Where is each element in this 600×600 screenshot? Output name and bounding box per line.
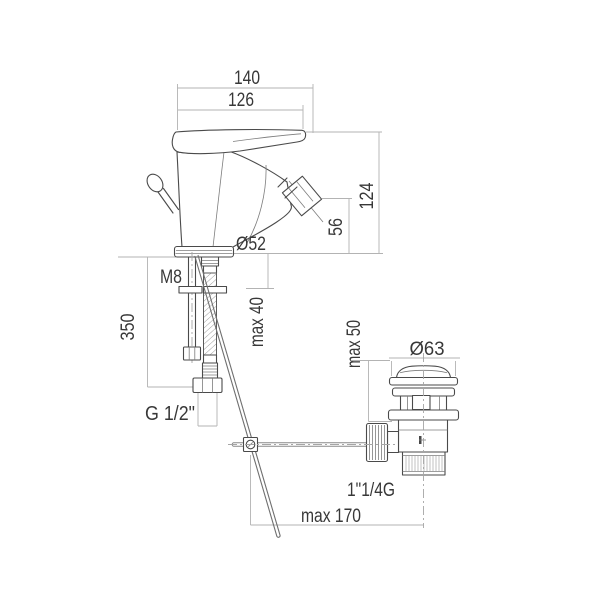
dim-line-max50 [352, 361, 392, 422]
drain-assembly [367, 366, 459, 475]
pop-up-knob-stem [158, 189, 179, 214]
dim-label-g12: G 1/2" [145, 403, 195, 425]
dim-label-126: 126 [228, 90, 254, 111]
bidet-mixer-drawing: 140 126 124 56 Ø52 M8 350 max 40 G 1/2" … [0, 0, 600, 600]
dim-label-124: 124 [357, 182, 378, 209]
dim-label-350: 350 [118, 314, 139, 341]
hose-bottom-collar [204, 355, 217, 363]
dim-label-140: 140 [234, 68, 260, 89]
faucet-base [175, 247, 234, 258]
hose-top-collar [204, 266, 217, 273]
dim-label-diameter-52: Ø52 [236, 234, 266, 255]
mounting-washer-left [179, 287, 202, 294]
flex-hose-braid [204, 273, 217, 355]
dim-line-max40 [246, 254, 274, 289]
drain-neck-window [413, 396, 431, 410]
hose-bottom-fitting [203, 363, 218, 378]
dim-label-1-14g: 1"1/4G [347, 480, 395, 501]
technical-drawing-canvas: 140 126 124 56 Ø52 M8 350 max 40 G 1/2" … [0, 0, 600, 600]
drain-inlet-stub [388, 432, 399, 453]
hose-top-fitting [202, 257, 219, 266]
dim-label-diameter-63: Ø63 [410, 339, 445, 360]
faucet-handle [172, 130, 305, 154]
drain-lower-body [399, 420, 448, 452]
dim-label-max50: max 50 [344, 320, 365, 368]
leader-g12 [198, 393, 217, 426]
pop-up-knob [144, 171, 166, 195]
pop-up-linkage [195, 256, 367, 538]
dim-label-56: 56 [326, 218, 347, 236]
g12-hex-nut [193, 378, 222, 393]
dim-label-max40: max 40 [247, 297, 268, 347]
faucet-body [177, 152, 291, 248]
faucet [144, 130, 323, 257]
m8-stud-nut [184, 347, 201, 360]
dim-label-m8: M8 [160, 267, 182, 288]
dim-label-max170: max 170 [301, 506, 361, 527]
